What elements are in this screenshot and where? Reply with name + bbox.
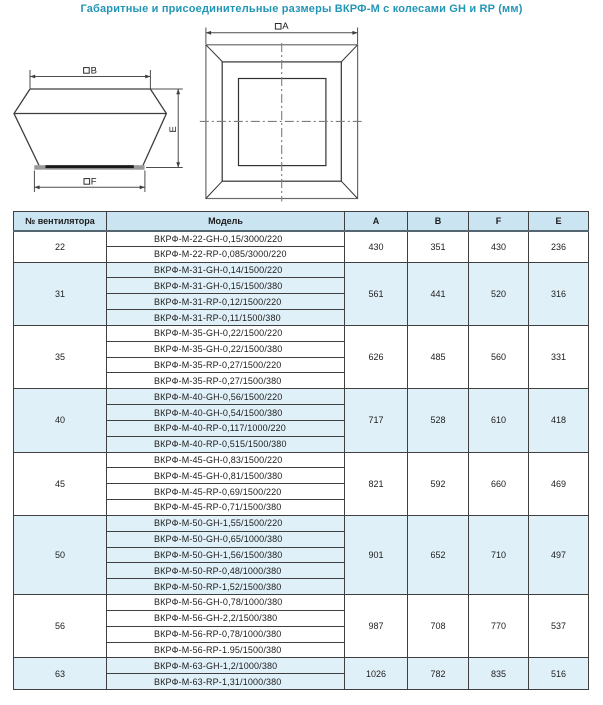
svg-text:B: B xyxy=(91,66,97,77)
svg-text:F: F xyxy=(91,177,97,188)
svg-text:E: E xyxy=(168,126,179,132)
svg-text:A: A xyxy=(282,21,289,32)
